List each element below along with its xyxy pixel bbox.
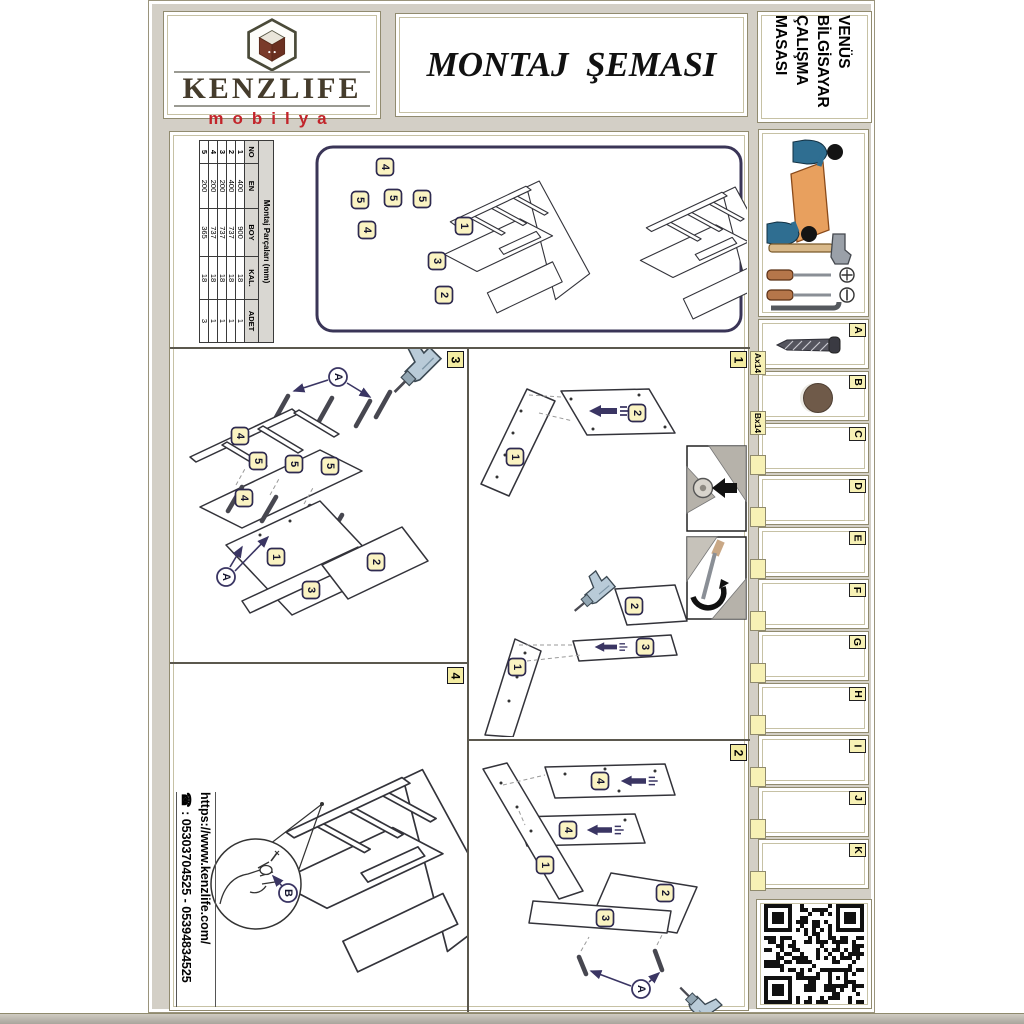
screw-icon [775, 336, 845, 354]
product-line: MASASI [770, 15, 791, 119]
svg-text:A: A [635, 985, 647, 993]
contact-block: https://www.kenzlife.com/ ☎ : 0530370452… [176, 792, 216, 1007]
parts-table-cell: 200 [218, 164, 227, 209]
hardware-qty-label-blank [750, 663, 766, 683]
tools-box [758, 129, 869, 317]
cover-cap-icon [803, 383, 833, 413]
assembly-sheet-page: KENZLIFE mobilya MONTAJ ŞEMASI VENÜS BİL… [0, 0, 1024, 1024]
hardware-letter-badge: C [849, 427, 866, 441]
parts-table-cell: 365 [200, 209, 209, 257]
step3-diagram: A A 4 [170, 349, 467, 662]
svg-text:4: 4 [562, 827, 574, 834]
svg-text:1: 1 [270, 554, 282, 560]
hardware-letter-badge: D [849, 479, 866, 493]
svg-text:2: 2 [659, 890, 671, 896]
svg-text:1: 1 [458, 223, 470, 229]
hardware-qty-label: Ax14 [750, 351, 766, 375]
product-name-rotated: VENÜS BİLGİSAYAR ÇALIŞMA MASASI [763, 15, 854, 119]
parts-table-cell: 1 [236, 300, 245, 343]
parts-table-cell: 200 [209, 164, 218, 209]
brand-tagline: mobilya [208, 109, 335, 129]
parts-table-header: KAL. [245, 257, 259, 300]
svg-text:1: 1 [511, 664, 523, 670]
svg-text:3: 3 [431, 258, 443, 264]
parts-table-cell: 18 [227, 257, 236, 300]
overview-diagram: 4 5 5 5 4 1 3 2 [312, 142, 747, 337]
parts-table-cell: 1 [227, 300, 236, 343]
parts-table-cell: 5 [200, 141, 209, 164]
parts-table-header: EN [245, 164, 259, 209]
parts-table-cell: 1 [218, 300, 227, 343]
bottom-strip [0, 1013, 1024, 1024]
svg-text:2: 2 [628, 603, 640, 609]
hardware-qty-label-blank [750, 559, 766, 579]
hardware-qty-label: Bx14 [750, 411, 766, 435]
svg-text:A: A [332, 373, 344, 381]
hardware-cell-J: J [758, 787, 869, 837]
flat-screwdriver-icon [767, 288, 854, 302]
phillips-screwdriver-icon [767, 268, 854, 282]
hardware-letter-badge: I [849, 739, 866, 753]
parts-table-cell: 2 [227, 141, 236, 164]
phone-icon: ☎ [179, 792, 193, 808]
svg-text:3: 3 [639, 644, 651, 650]
hardware-cell-E: E [758, 527, 869, 577]
svg-text:B: B [282, 889, 294, 897]
svg-text:5: 5 [324, 463, 336, 469]
hardware-letter-badge: J [849, 791, 866, 805]
hardware-qty-label-blank [750, 455, 766, 475]
parts-table-cell: 18 [200, 257, 209, 300]
svg-text:3: 3 [305, 587, 317, 593]
svg-text:2: 2 [631, 410, 643, 416]
cam-detail-inset [687, 446, 746, 531]
svg-text:5: 5 [252, 458, 264, 464]
brand-name: KENZLIFE [174, 71, 369, 107]
step-badge-4: 4 [447, 667, 464, 684]
hardware-qty-label-blank [750, 507, 766, 527]
parts-table-cell: 400 [236, 164, 245, 209]
hardware-letter-badge: F [849, 583, 866, 597]
hardware-cell-C: C [758, 423, 869, 473]
parts-table-title: Montaj Parçaları (mm) [259, 141, 274, 343]
svg-text:5: 5 [416, 196, 428, 202]
hardware-cell-I: I [758, 735, 869, 785]
page-title: MONTAJ ŞEMASI [396, 14, 747, 116]
hardware-letter-badge: H [849, 687, 866, 701]
drill-icon [564, 568, 616, 617]
parts-table: Montaj Parçaları (mm)NOENBOYKAL.ADET1400… [199, 140, 274, 343]
parts-table-cell: 400 [227, 164, 236, 209]
parts-table-cell: 737 [218, 209, 227, 257]
qr-code [764, 904, 864, 1004]
step-badge-1: 1 [730, 351, 747, 368]
parts-table-cell: 1 [236, 141, 245, 164]
hardware-cell-A: AA [758, 319, 869, 369]
parts-table-cell: 900 [236, 209, 245, 257]
product-line: VENÜS [833, 15, 854, 119]
hardware-letter-badge: B [849, 375, 866, 389]
hardware-qty-label-blank [750, 715, 766, 735]
allen-key-icon [771, 302, 839, 308]
parts-table-cell: 737 [227, 209, 236, 257]
hardware-letter-badge: K [849, 843, 866, 857]
parts-table-cell: 18 [209, 257, 218, 300]
hardware-letter-badge: G [849, 635, 866, 649]
website-link: https://www.kenzlife.com/ [195, 792, 214, 1007]
parts-table-cell: 200 [200, 164, 209, 209]
parts-table-header: NO [245, 141, 259, 164]
hardware-qty-label-blank [750, 767, 766, 787]
parts-table-header: ADET [245, 300, 259, 343]
sheet-background: KENZLIFE mobilya MONTAJ ŞEMASI VENÜS BİL… [148, 0, 875, 1013]
parts-table-cell: 3 [218, 141, 227, 164]
step-badge-2: 2 [730, 744, 747, 761]
diagram-area: 3 1 4 2 Montaj Parçaları (mm)NOENBOYKAL.… [169, 131, 749, 1011]
svg-text:2: 2 [370, 559, 382, 565]
screwdriver-detail-inset [687, 537, 746, 619]
parts-table-grid: Montaj Parçaları (mm)NOENBOYKAL.ADET1400… [199, 140, 274, 343]
parts-table-cell: 18 [236, 257, 245, 300]
hardware-cell-G: G [758, 631, 869, 681]
fastener-label-A: A [217, 568, 235, 586]
product-line: BİLGİSAYAR [812, 15, 833, 119]
step2-diagram: A 4 4 1 2 3 [469, 741, 750, 1012]
svg-text:5: 5 [387, 195, 399, 201]
kenzlife-logo-icon [241, 17, 303, 71]
product-line: ÇALIŞMA [791, 15, 812, 119]
hardware-qty-label-blank [750, 871, 766, 891]
hardware-letter-badge: A [849, 323, 866, 337]
svg-text:1: 1 [539, 862, 551, 868]
svg-text:2: 2 [438, 292, 450, 298]
fastener-label-A: A [632, 980, 650, 998]
hardware-cell-B: B [758, 371, 869, 421]
qr-box [756, 899, 872, 1009]
hardware-cell-D: D [758, 475, 869, 525]
phone-line: ☎ : 05303704525 - 05394834525 [176, 792, 195, 1007]
phone-numbers: : 05303704525 - 05394834525 [179, 811, 193, 983]
workers-carrying-board-icon [767, 140, 843, 245]
hardware-qty-label-blank [750, 611, 766, 631]
tools-illustration [761, 132, 864, 312]
hardware-qty-label-blank [750, 819, 766, 839]
parts-table-cell: 4 [209, 141, 218, 164]
hardware-cell-H: H [758, 683, 869, 733]
svg-text:1: 1 [509, 454, 521, 460]
hardware-cell-K: K [758, 839, 869, 889]
parts-table-cell: 18 [218, 257, 227, 300]
hardware-letter-badge: E [849, 531, 866, 545]
fastener-label-B: B [279, 884, 297, 902]
parts-table-cell: 737 [209, 209, 218, 257]
hardware-cell-F: F [758, 579, 869, 629]
svg-text:4: 4 [379, 164, 391, 171]
svg-text:5: 5 [354, 197, 366, 203]
fastener-label-A: A [329, 368, 347, 386]
svg-text:4: 4 [234, 433, 246, 440]
parts-table-header: BOY [245, 209, 259, 257]
svg-text:4: 4 [238, 495, 250, 502]
svg-text:4: 4 [361, 227, 373, 234]
svg-text:4: 4 [594, 778, 606, 785]
parts-table-cell: 1 [209, 300, 218, 343]
svg-text:A: A [220, 573, 232, 581]
step-badge-3: 3 [447, 351, 464, 368]
drill-icon [675, 976, 725, 1012]
title-box: MONTAJ ŞEMASI [395, 13, 748, 117]
svg-text:5: 5 [288, 461, 300, 467]
parts-table-cell: 3 [200, 300, 209, 343]
step1-diagram: 1 2 [469, 349, 750, 737]
svg-text:3: 3 [599, 915, 611, 921]
logo-box: KENZLIFE mobilya [163, 11, 381, 119]
